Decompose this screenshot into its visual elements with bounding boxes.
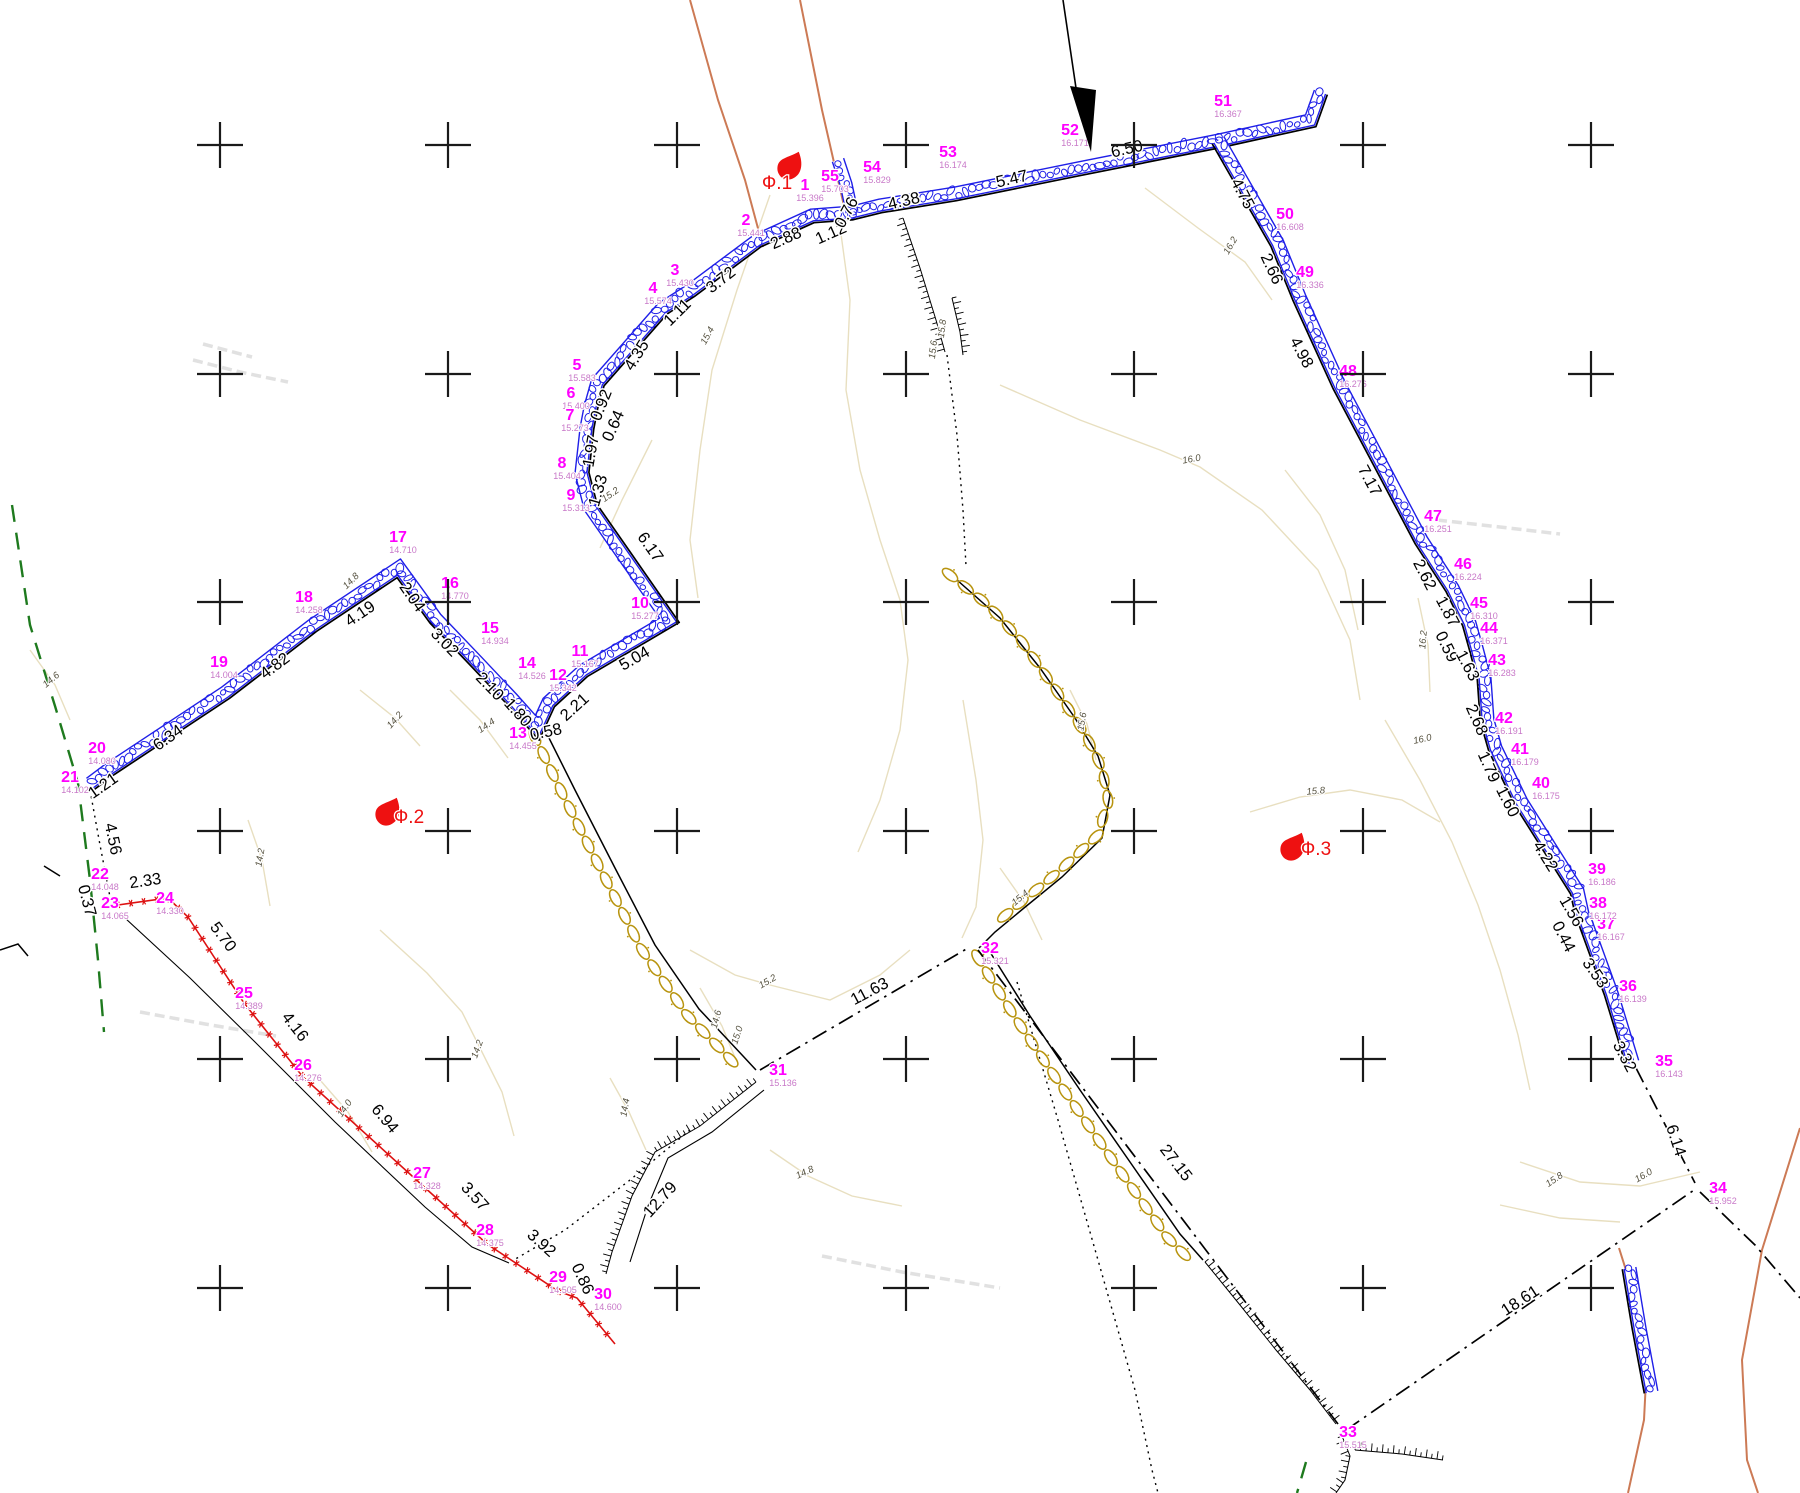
point-elevation-label: 15.829	[863, 175, 891, 185]
point-number-label: 23	[101, 895, 119, 912]
distance-label: 4.56	[101, 821, 125, 856]
grid-cross	[654, 1036, 700, 1082]
point-number-label: 39	[1588, 861, 1606, 878]
distance-label: 3.32	[1609, 1038, 1640, 1075]
grid-cross	[883, 1036, 929, 1082]
grid-cross	[883, 351, 929, 397]
point-number-label: 28	[476, 1222, 494, 1239]
contour-label: 14.2	[254, 847, 268, 868]
point-number-label: 38	[1589, 895, 1607, 912]
grid-cross	[654, 122, 700, 168]
point-elevation-label: 16.283	[1488, 668, 1516, 678]
point-number-label: 5	[573, 357, 582, 374]
point-elevation-label: 14.455	[509, 741, 537, 751]
point-number-label: 18	[295, 589, 313, 606]
point-number-label: 10	[631, 595, 649, 612]
point-number-label: 21	[61, 769, 79, 786]
point-number-label: 48	[1339, 363, 1357, 380]
distance-label: 18.61	[1498, 1282, 1542, 1320]
point-elevation-label: 15.273	[561, 423, 589, 433]
point-number-label: 11	[572, 643, 589, 660]
point-number-label: 27	[413, 1165, 431, 1182]
point-number-label: 1	[801, 177, 810, 194]
point-number-label: 41	[1511, 741, 1529, 758]
dotted-boundary-lines	[90, 355, 1158, 1493]
grid-cross	[425, 808, 471, 854]
contour-label: 15.2	[757, 972, 779, 991]
grid-cross	[883, 579, 929, 625]
point-elevation-label: 16.367	[1214, 109, 1242, 119]
thin-boundary-lines	[0, 580, 1203, 1263]
point-elevation-label: 14.065	[101, 911, 129, 921]
point-number-label: 51	[1214, 93, 1232, 110]
point-number-label: 7	[566, 407, 575, 424]
grid-cross	[1111, 579, 1157, 625]
point-elevation-label: 16.172	[1589, 911, 1617, 921]
contour-label: 16.2	[1417, 629, 1430, 649]
point-number-label: 44	[1480, 620, 1498, 637]
contour-label: 15.6	[927, 339, 940, 359]
distance-label: 5.47	[994, 167, 1029, 192]
grid-cross	[1568, 351, 1614, 397]
parcel-markers: Ф.1Ф.2Ф.3	[375, 152, 1331, 861]
survey-map-canvas: 2.881.120.764.385.476.503.721.114.350.92…	[0, 0, 1800, 1493]
point-elevation-label: 15.441	[737, 228, 765, 238]
point-elevation-label: 16.175	[1532, 791, 1560, 801]
grid-cross	[654, 1265, 700, 1311]
distance-label: 4.38	[886, 189, 921, 214]
point-elevation-label: 15.277	[631, 611, 659, 621]
point-number-label: 46	[1454, 556, 1472, 573]
parcel-marker-label: Ф.2	[394, 807, 424, 828]
point-elevation-label: 16.171	[1061, 138, 1089, 148]
contour-label: 15.4	[699, 325, 717, 346]
point-number-label: 29	[549, 1269, 567, 1286]
point-elevation-label: 14.328	[413, 1181, 441, 1191]
point-elevation-label: 16.191	[1495, 726, 1523, 736]
red-fence-line	[116, 896, 615, 1344]
grid-crosses	[197, 122, 1614, 1311]
cadastral-survey-map: 2.881.120.764.385.476.503.721.114.350.92…	[0, 0, 1800, 1493]
parcel-marker-label: Ф.3	[1301, 839, 1331, 860]
grid-cross	[197, 579, 243, 625]
contour-label: 15.0	[730, 1024, 746, 1046]
point-elevation-label: 16.174	[939, 160, 967, 170]
point-elevation-label: 15.430	[666, 278, 694, 288]
grid-cross	[1111, 1265, 1157, 1311]
point-elevation-label: 15.515	[1339, 1440, 1367, 1450]
grid-cross	[197, 1265, 243, 1311]
distance-label: 6.14	[1662, 1122, 1689, 1158]
point-elevation-label: 15.574	[644, 296, 672, 306]
point-elevation-label: 14.505	[549, 1285, 577, 1295]
grid-cross	[1111, 1036, 1157, 1082]
point-number-label: 25	[235, 985, 253, 1002]
point-number-label: 13	[509, 725, 527, 742]
grid-cross	[197, 1036, 243, 1082]
point-elevation-label: 14.004	[210, 670, 238, 680]
point-elevation-label: 14.770	[441, 591, 469, 601]
point-number-label: 53	[939, 144, 957, 161]
distance-label: 12.79	[640, 1178, 681, 1221]
point-number-label: 35	[1655, 1053, 1673, 1070]
grid-cross	[1340, 1036, 1386, 1082]
point-number-label: 34	[1709, 1180, 1727, 1197]
distance-label: 6.94	[368, 1101, 402, 1137]
point-elevation-label: 14.276	[294, 1073, 322, 1083]
grid-cross	[1568, 1036, 1614, 1082]
grid-cross	[883, 808, 929, 854]
point-elevation-label: 14.526	[518, 671, 546, 681]
point-elevation-label: 16.251	[1424, 524, 1452, 534]
distance-label: 3.92	[523, 1226, 559, 1261]
grid-cross	[197, 122, 243, 168]
contour-label: 15.8	[1544, 1170, 1566, 1190]
point-number-label: 36	[1619, 978, 1637, 995]
point-elevation-label: 14.080	[88, 756, 116, 766]
point-elevation-label: 14.048	[91, 882, 119, 892]
grid-cross	[1340, 579, 1386, 625]
green-dashed-boundary	[12, 505, 1306, 1493]
point-elevation-label: 15.703	[821, 184, 849, 194]
point-number-label: 33	[1339, 1424, 1357, 1441]
point-number-label: 45	[1470, 595, 1488, 612]
point-number-label: 16	[441, 575, 459, 592]
point-elevation-label: 15.342	[549, 683, 577, 693]
point-number-label: 42	[1495, 710, 1513, 727]
grid-cross	[1111, 808, 1157, 854]
contour-label: 15.8	[1306, 785, 1326, 798]
point-elevation-label: 15.136	[769, 1078, 797, 1088]
point-elevation-label: 14.330	[156, 906, 184, 916]
point-elevation-label: 16.139	[1619, 994, 1647, 1004]
point-elevation-label: 14.600	[594, 1302, 622, 1312]
grid-cross	[425, 1265, 471, 1311]
point-elevation-label: 15.321	[981, 956, 1009, 966]
distance-labels: 2.881.120.764.385.476.503.721.114.350.92…	[74, 137, 1689, 1320]
point-number-label: 14	[518, 655, 536, 672]
contour-label: 15.8	[936, 318, 949, 338]
point-elevation-label: 15.404	[553, 471, 581, 481]
point-number-label: 12	[549, 667, 567, 684]
contour-label: 16.0	[1633, 1166, 1655, 1185]
point-elevation-label: 15.583	[568, 373, 596, 383]
point-number-label: 2	[742, 212, 751, 229]
point-elevation-label: 14.934	[481, 636, 509, 646]
grid-cross	[883, 1265, 929, 1311]
point-number-label: 3	[671, 262, 680, 279]
grid-cross	[1568, 122, 1614, 168]
point-number-label: 47	[1424, 508, 1442, 525]
faded-remnant-lines	[140, 344, 1560, 1288]
distance-label: 4.16	[278, 1009, 312, 1045]
point-elevation-label: 16.224	[1454, 572, 1482, 582]
parcel-marker-label: Ф.1	[762, 173, 792, 194]
point-number-label: 4	[649, 280, 658, 297]
grid-cross	[425, 351, 471, 397]
grid-cross	[425, 1036, 471, 1082]
point-number-label: 19	[210, 654, 228, 671]
point-elevation-label: 16.608	[1276, 222, 1304, 232]
point-number-label: 24	[156, 890, 174, 907]
contour-elevation-labels: 15.415.815.616.015.215.215.014.614.414.4…	[41, 234, 1655, 1189]
grid-cross	[654, 808, 700, 854]
point-elevation-label: 16.310	[1470, 611, 1498, 621]
point-elevation-label: 14.258	[295, 605, 323, 615]
point-number-label: 6	[567, 385, 576, 402]
point-number-label: 54	[863, 159, 881, 176]
point-elevation-label: 16.179	[1511, 757, 1539, 767]
point-number-label: 31	[769, 1062, 787, 1079]
wall-survey-line	[95, 95, 1328, 790]
point-elevation-label: 14.710	[389, 545, 417, 555]
point-number-label: 30	[594, 1286, 612, 1303]
point-number-label: 32	[981, 940, 999, 957]
stone-wall-band	[90, 92, 1320, 783]
grid-cross	[1111, 351, 1157, 397]
point-elevation-label: 15.313	[562, 503, 590, 513]
contour-label: 16.0	[1182, 452, 1203, 466]
point-number-label: 50	[1276, 206, 1294, 223]
point-elevation-label: 16.167	[1597, 932, 1625, 942]
grid-cross	[197, 808, 243, 854]
point-elevation-label: 14.375	[476, 1238, 504, 1248]
grid-cross	[1568, 808, 1614, 854]
point-elevation-label: 14.102	[61, 785, 89, 795]
grid-cross	[1340, 808, 1386, 854]
point-number-label: 43	[1488, 652, 1506, 669]
point-number-label: 8	[558, 455, 567, 472]
point-elevation-label: 15.952	[1709, 1196, 1737, 1206]
point-number-label: 52	[1061, 122, 1079, 139]
point-elevation-label: 15.396	[796, 193, 824, 203]
grid-cross	[1340, 122, 1386, 168]
point-number-label: 20	[88, 740, 106, 757]
point-elevation-label: 16.143	[1655, 1069, 1683, 1079]
grid-cross	[197, 351, 243, 397]
point-elevation-label: 15.167	[571, 659, 599, 669]
contour-label: 16.2	[1221, 234, 1240, 256]
grid-cross	[883, 122, 929, 168]
point-number-label: 22	[91, 866, 109, 883]
distance-label: 3.02	[427, 625, 462, 661]
distance-label: 27.15	[1156, 1141, 1196, 1185]
point-number-label: 9	[567, 487, 576, 504]
point-number-label: 15	[481, 620, 499, 637]
grid-cross	[1340, 1265, 1386, 1311]
grid-cross	[425, 122, 471, 168]
grid-cross	[1568, 579, 1614, 625]
point-number-label: 26	[294, 1057, 312, 1074]
point-elevation-label: 16.336	[1296, 280, 1324, 290]
distance-label: 6.17	[634, 529, 667, 566]
point-elevation-label: 14.389	[235, 1001, 263, 1011]
contour-label: 16.0	[1412, 732, 1433, 747]
point-number-label: 17	[389, 529, 407, 546]
distance-label: 3.57	[457, 1179, 492, 1215]
point-elevation-label: 16.186	[1588, 877, 1616, 887]
point-number-label: 40	[1532, 775, 1550, 792]
point-number-label: 49	[1296, 264, 1314, 281]
distance-label: 2.33	[128, 870, 162, 892]
point-number-label: 55	[821, 168, 839, 185]
grid-cross	[654, 351, 700, 397]
point-elevation-label: 16.371	[1480, 636, 1508, 646]
